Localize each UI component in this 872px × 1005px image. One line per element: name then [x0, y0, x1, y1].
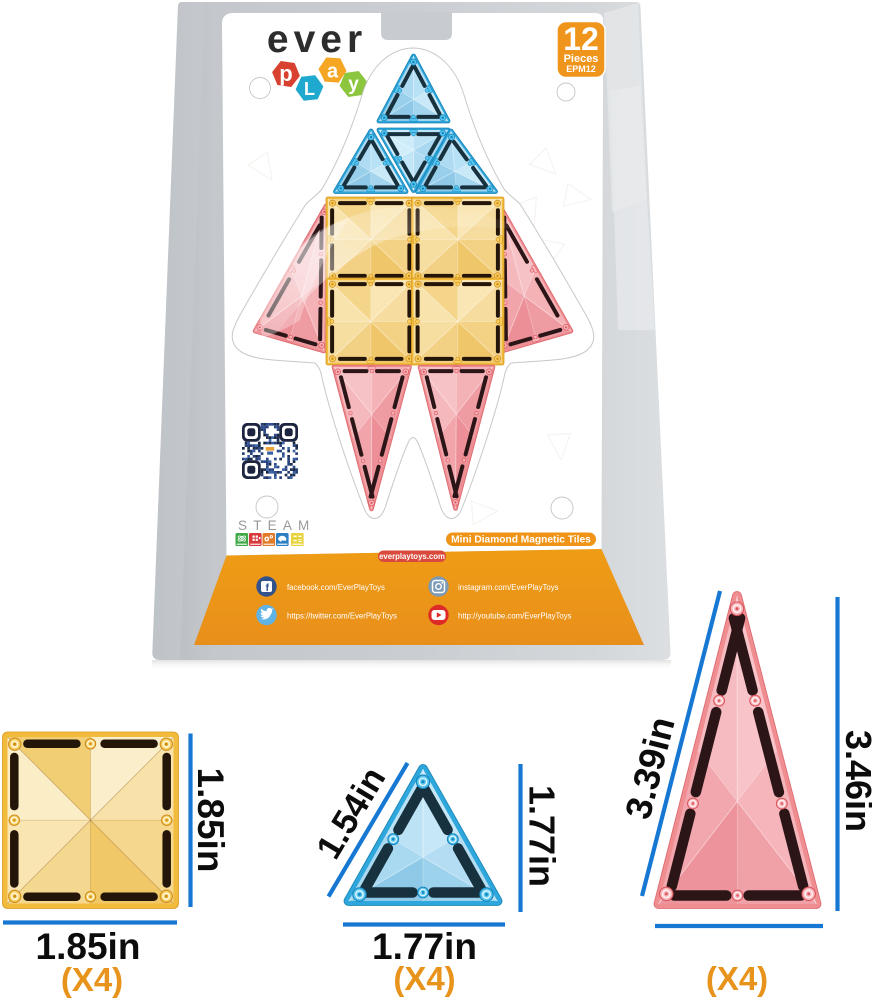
svg-text:p: p — [279, 61, 292, 86]
svg-text:f: f — [266, 582, 270, 594]
svg-text:y: y — [348, 74, 359, 95]
svg-text:STEAM: STEAM — [238, 518, 316, 533]
svg-text:http://youtube.com/EverPlayToy: http://youtube.com/EverPlayToys — [458, 612, 572, 621]
svg-text:(X4): (X4) — [61, 961, 123, 998]
svg-text:12: 12 — [563, 21, 599, 57]
svg-text:1.77in: 1.77in — [522, 785, 563, 887]
svg-text:facebook.com/EverPlayToys: facebook.com/EverPlayToys — [287, 583, 385, 592]
svg-text:instagram.com/EverPlayToys: instagram.com/EverPlayToys — [458, 583, 559, 592]
svg-text:(X4): (X4) — [393, 960, 455, 997]
svg-text:1.85in: 1.85in — [190, 768, 231, 873]
svg-text:(X4): (X4) — [706, 960, 768, 997]
svg-text:ever: ever — [267, 18, 367, 61]
svg-text:a: a — [327, 61, 339, 83]
svg-text:3.46in: 3.46in — [838, 730, 872, 832]
svg-text:L: L — [304, 79, 315, 99]
svg-text:Mini Diamond Magnetic Tiles: Mini Diamond Magnetic Tiles — [451, 535, 591, 546]
svg-text:https://twitter.com/EverPlayTo: https://twitter.com/EverPlayToys — [287, 612, 397, 621]
svg-text:EPM12: EPM12 — [566, 64, 596, 74]
svg-text:everplaytoys.com: everplaytoys.com — [379, 552, 445, 561]
